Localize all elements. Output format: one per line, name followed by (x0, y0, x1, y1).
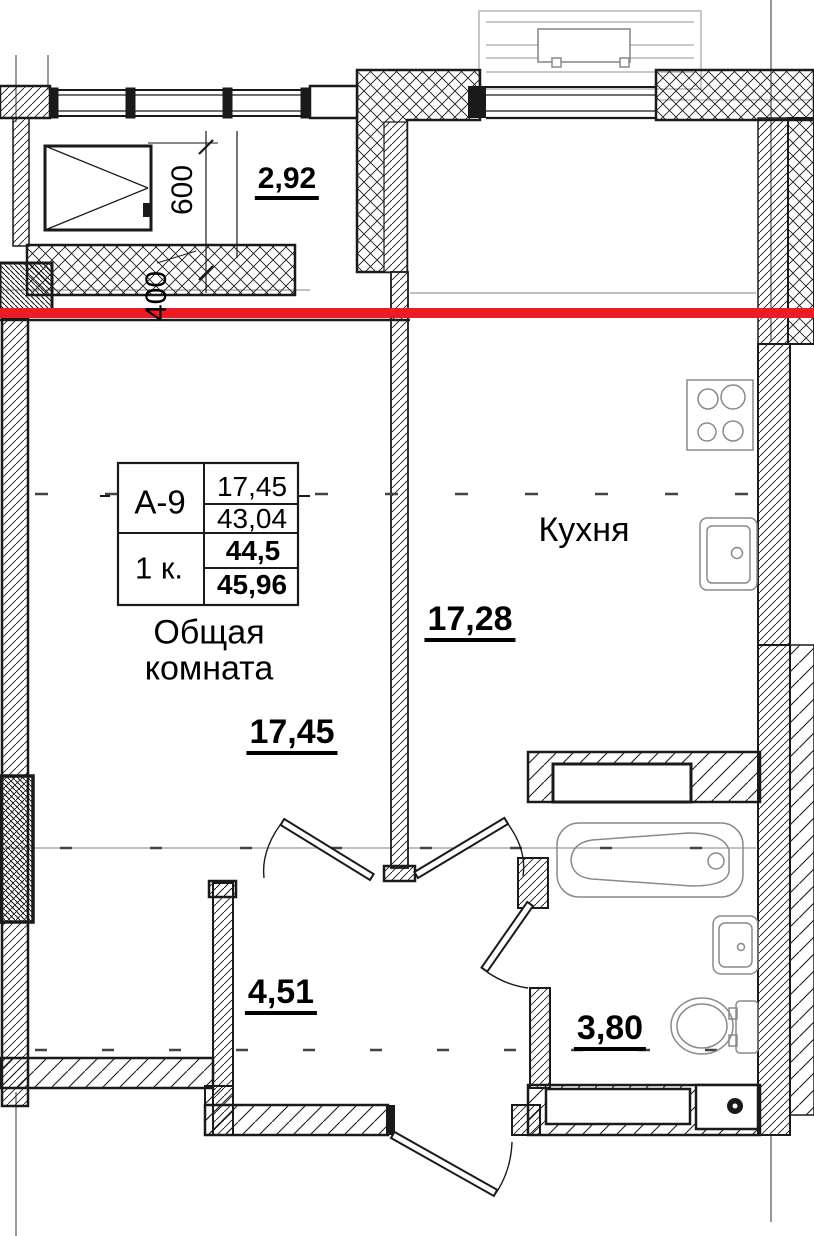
toilet-icon (671, 998, 758, 1054)
balcony-corner-pillar (310, 86, 357, 118)
door-leaf-icon (281, 819, 374, 880)
bathroom-duct-niche (546, 1089, 690, 1124)
wall-divider-cap (384, 866, 415, 881)
table-area-row2-value: 43,04 (217, 505, 287, 533)
table-total-area-value: 45,96 (217, 571, 287, 599)
door-swing-arc (487, 972, 528, 988)
kitchen-name-label: Кухня (539, 513, 630, 547)
door-leaf-icon (391, 1132, 497, 1196)
rooms-count-label: 1 к. (135, 553, 183, 584)
wall-bathdoor-pier-bottom (530, 988, 550, 1088)
table-area-row3-value: 44,5 (226, 537, 281, 565)
wall-pier-balcony-kitchen (357, 70, 480, 272)
bathtub-icon (557, 823, 743, 897)
stove-icon (687, 380, 753, 450)
section-cut-line (0, 308, 814, 318)
wall-room-divider (391, 272, 408, 868)
living-room-door (264, 819, 374, 880)
entrance-door (391, 1132, 512, 1196)
wall-right-lower-outer (790, 645, 814, 1115)
wall-bathdoor-pier-top (518, 858, 548, 908)
kitchen-sink-icon (700, 518, 757, 590)
dimension-400-label: 400 (142, 271, 172, 321)
floor-plan: 2,92 600 400 А-9 17,45 43,04 1 к. 44,5 4… (0, 0, 814, 1236)
dimension-600-label: 600 (168, 165, 198, 215)
wall-entrance-right-jamb (512, 1105, 540, 1135)
windows (50, 86, 656, 118)
wall-living-bottom (0, 1058, 213, 1088)
wall-balcony-corner (0, 86, 50, 118)
wall-right-lower-inner (758, 645, 790, 1135)
wall-left-pilaster (0, 776, 33, 922)
balcony-glazing (50, 88, 310, 118)
living-room-name-label: Общая комната (100, 615, 318, 688)
hallway-area-label: 4,51 (245, 975, 317, 1015)
wall-entrance (205, 1105, 388, 1135)
bathroom-drain-box (696, 1085, 758, 1129)
balcony-area-label: 2,92 (255, 164, 319, 200)
wall-dense-block (0, 263, 52, 311)
bathroom-shelf-niche (553, 764, 691, 802)
door-swing-arc (264, 825, 280, 878)
bathroom-area-label: 3,80 (574, 1011, 646, 1051)
apartment-code-label: А-9 (134, 486, 185, 519)
bathroom-door (481, 902, 533, 988)
living-room-area-label: 17,45 (246, 715, 337, 755)
wall-left (2, 318, 28, 1106)
wall-hall-left-cap (209, 881, 236, 897)
wall-top-right (656, 70, 814, 120)
kitchen-window (486, 87, 656, 118)
table-living-area-value: 17,45 (217, 473, 287, 501)
kitchen-area-label: 17,28 (424, 602, 515, 642)
wall-balcony-left (13, 118, 29, 246)
wall-right-mid (758, 344, 790, 645)
wall-entrance-cap (386, 1105, 395, 1135)
wall-kitchen-window-corner (468, 86, 486, 118)
door-leaf-icon (481, 902, 533, 972)
door-swing-arc (494, 1142, 512, 1196)
washbasin-icon (713, 916, 758, 974)
wall-pier-inner-leaf (384, 122, 407, 272)
window-icon (45, 146, 151, 230)
